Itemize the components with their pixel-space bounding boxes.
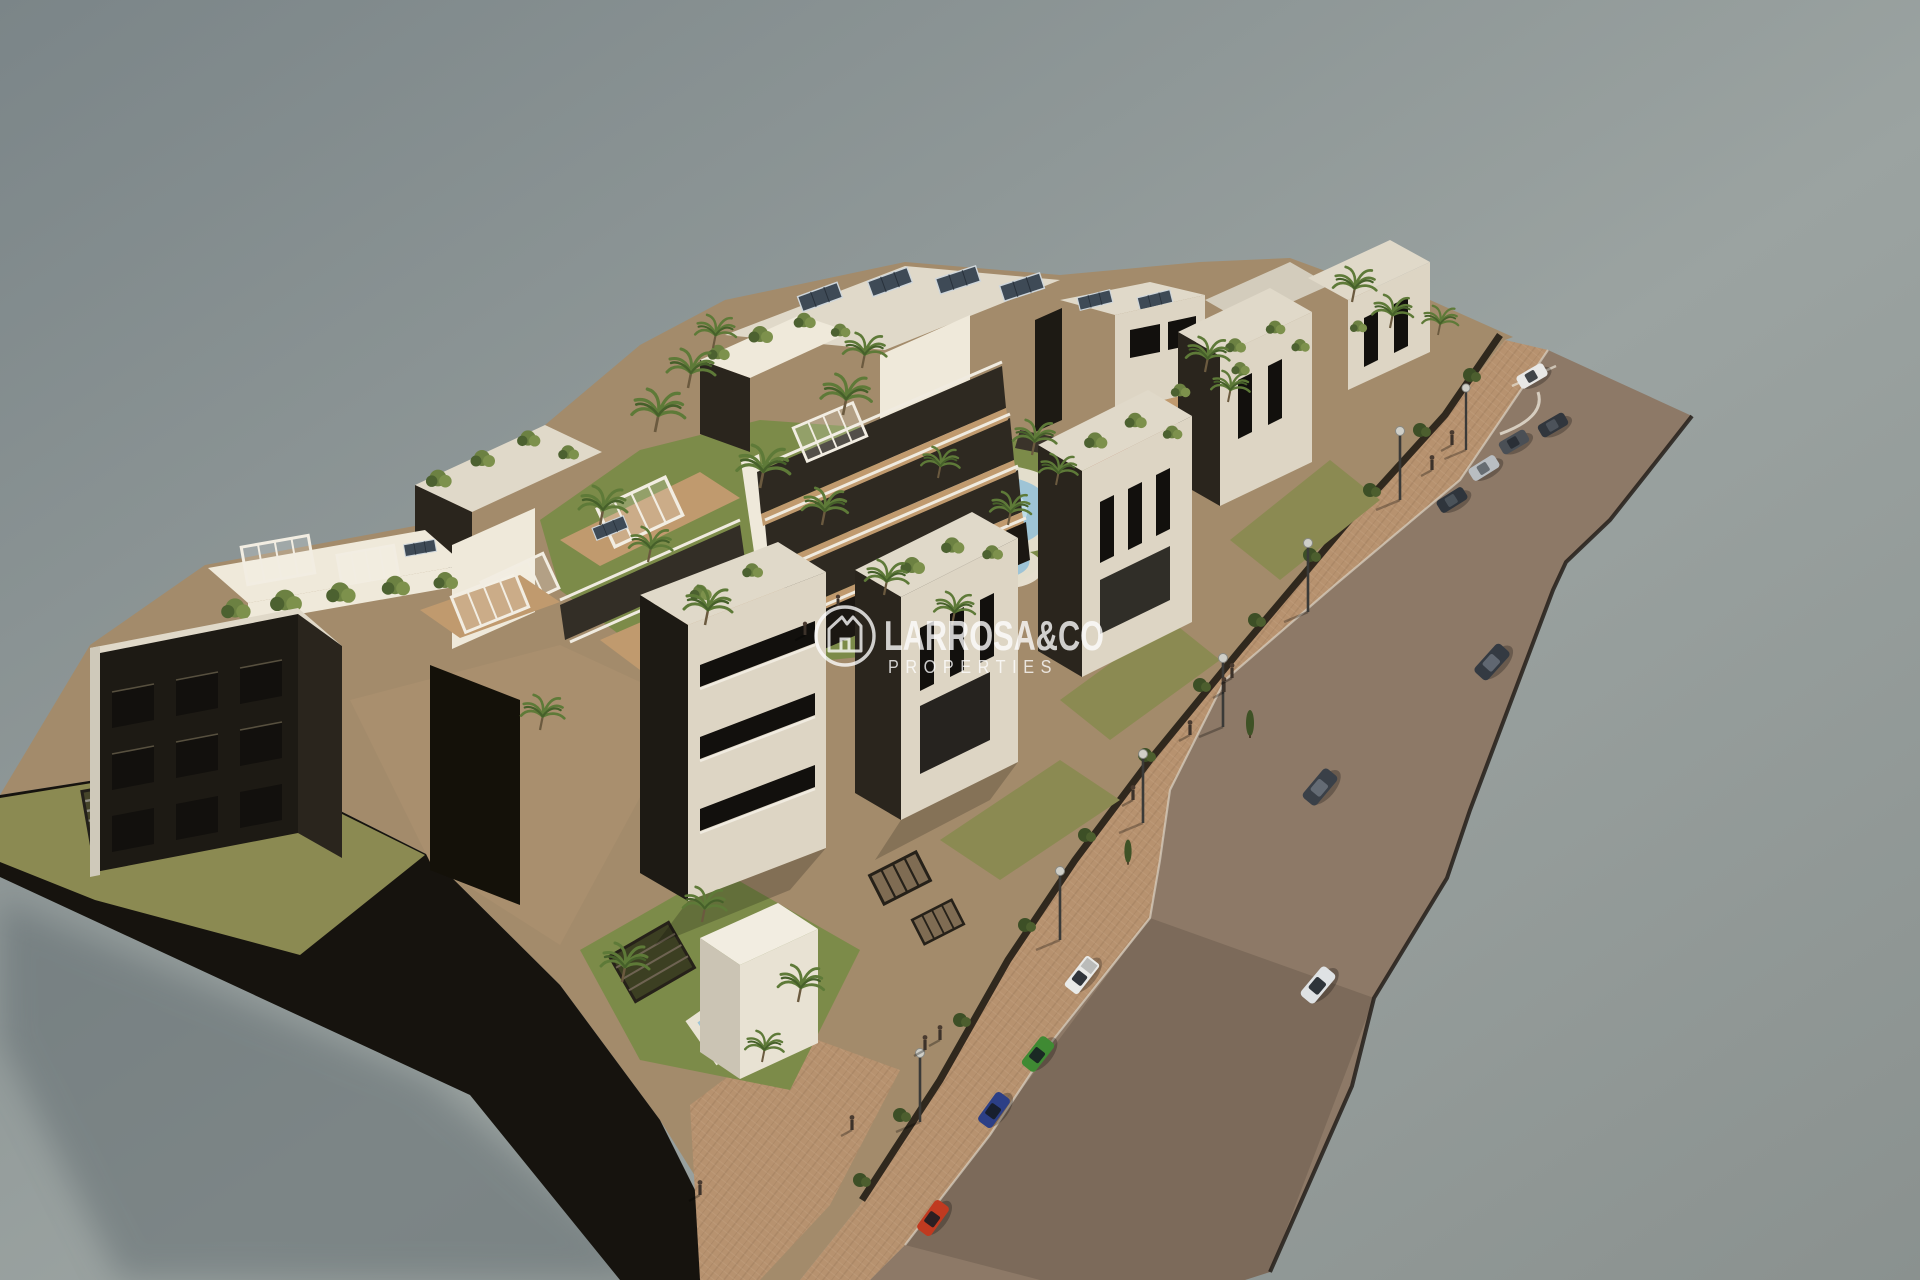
block-a-side [855,570,901,820]
window-slit [1100,495,1114,563]
window [1130,324,1160,358]
left-inner-side [298,614,342,858]
stairwell-slot [1035,308,1062,432]
render-canvas: LARROSA&CO PROPERTIES [0,0,1920,1280]
left-facade-windows [112,660,282,852]
watermark-subtitle-text: PROPERTIES [888,656,1058,677]
aerial-render: LARROSA&CO PROPERTIES [0,0,1920,1280]
window-slit [1156,468,1170,536]
bottom-block-side [640,595,688,901]
left-end-sunlit-sliver [90,646,100,877]
watermark-brand-text: LARROSA&CO [884,612,1104,659]
window-slit [1364,311,1378,367]
window-slit [1128,482,1142,550]
window-slit [1268,359,1282,425]
stairwell-shadow [430,665,520,905]
